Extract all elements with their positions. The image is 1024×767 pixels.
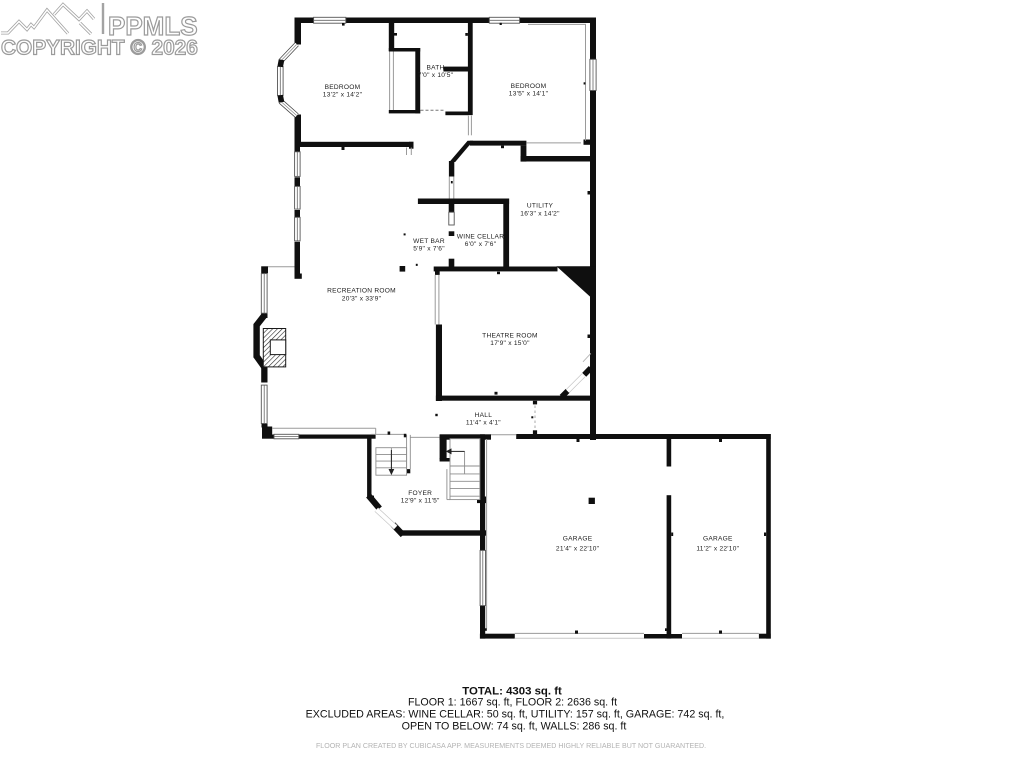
svg-text:7'0" x 10'5": 7'0" x 10'5" (418, 72, 454, 79)
svg-text:COPYRIGHT © 2026: COPYRIGHT © 2026 (1, 37, 198, 60)
svg-text:UTILITY: UTILITY (527, 203, 554, 210)
svg-text:BATH: BATH (426, 65, 444, 72)
svg-text:RECREATION ROOM: RECREATION ROOM (327, 288, 396, 295)
svg-text:6'0" x 7'6": 6'0" x 7'6" (465, 241, 497, 248)
svg-text:GARAGE: GARAGE (703, 536, 733, 543)
svg-text:FLOOR 1: 1667 sq. ft, FLOOR 2:: FLOOR 1: 1667 sq. ft, FLOOR 2: 2636 sq. … (408, 696, 617, 708)
svg-text:EXCLUDED AREAS: WINE CELLAR: 5: EXCLUDED AREAS: WINE CELLAR: 50 sq. ft, … (306, 709, 725, 721)
svg-text:11'2" x 22'10": 11'2" x 22'10" (696, 545, 739, 552)
svg-text:WET BAR: WET BAR (413, 238, 445, 245)
svg-text:21'4" x 22'10": 21'4" x 22'10" (556, 545, 600, 552)
svg-text:13'5" x 14'1": 13'5" x 14'1" (509, 91, 549, 98)
svg-text:THEATRE ROOM: THEATRE ROOM (482, 332, 538, 339)
svg-text:FOYER: FOYER (408, 490, 432, 497)
svg-text:BEDROOM: BEDROOM (325, 84, 361, 91)
svg-text:12'9" x 11'5": 12'9" x 11'5" (401, 498, 440, 505)
svg-text:11'4" x 4'1": 11'4" x 4'1" (466, 420, 501, 427)
svg-text:HALL: HALL (475, 412, 493, 419)
svg-text:5'9" x 7'6": 5'9" x 7'6" (413, 246, 445, 253)
svg-text:FLOOR PLAN CREATED BY CUBICASA: FLOOR PLAN CREATED BY CUBICASA APP. MEAS… (316, 742, 706, 750)
svg-text:GARAGE: GARAGE (563, 536, 593, 543)
svg-text:17'9" x 15'0": 17'9" x 15'0" (490, 340, 530, 347)
svg-text:20'3" x 33'9": 20'3" x 33'9" (342, 295, 382, 302)
svg-text:13'2" x 14'2": 13'2" x 14'2" (323, 92, 363, 99)
svg-text:WINE CELLAR: WINE CELLAR (457, 233, 504, 240)
svg-text:OPEN TO BELOW: 74 sq. ft, WALL: OPEN TO BELOW: 74 sq. ft, WALLS: 286 sq.… (402, 721, 627, 733)
svg-text:16'3" x 14'2": 16'3" x 14'2" (520, 210, 560, 217)
svg-text:BEDROOM: BEDROOM (511, 83, 547, 90)
